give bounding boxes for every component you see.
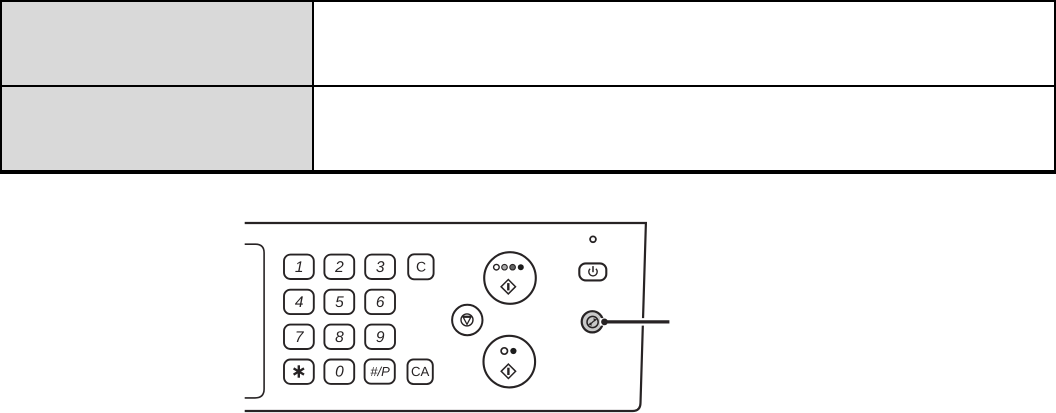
svg-text:0: 0 [335, 364, 344, 381]
svg-text:3: 3 [376, 259, 385, 276]
svg-text:5: 5 [335, 294, 344, 311]
svg-text:2: 2 [334, 259, 344, 276]
svg-text:4: 4 [295, 294, 304, 311]
svg-text:C: C [416, 258, 426, 274]
svg-text:1: 1 [295, 259, 304, 276]
svg-text:6: 6 [376, 294, 385, 311]
svg-text:#/P: #/P [370, 364, 390, 379]
svg-text:CA: CA [411, 364, 430, 379]
svg-text:9: 9 [376, 329, 385, 346]
svg-text:8: 8 [335, 329, 344, 346]
svg-text:7: 7 [295, 329, 305, 346]
